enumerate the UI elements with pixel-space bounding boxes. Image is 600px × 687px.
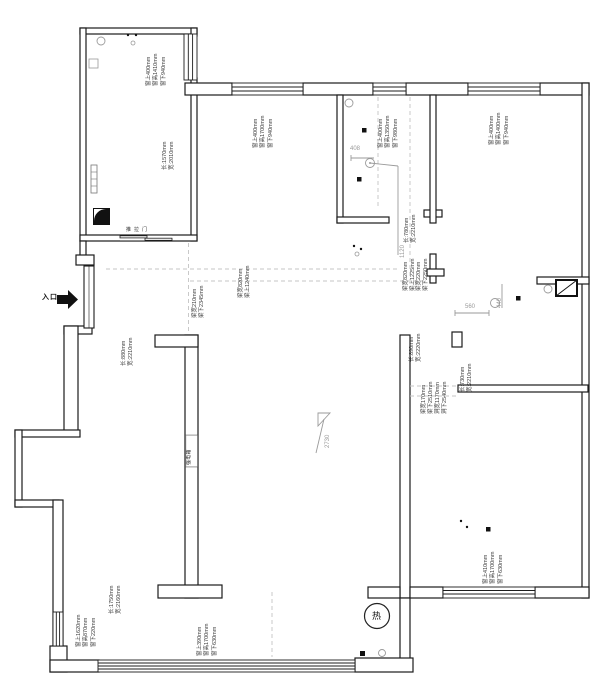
floor-plan-canvas: 窗上400mm 窗高1410mm 窗下940mm 窗上400mm 窗高1700m… <box>0 0 600 687</box>
sliding-door <box>120 236 172 241</box>
entrance-arrow-icon <box>57 290 78 309</box>
level-marker <box>316 413 330 453</box>
windows <box>53 34 540 672</box>
floor-plan-drawing <box>0 0 600 687</box>
walls <box>15 28 589 672</box>
dimension-lines <box>351 155 502 316</box>
electric-box-symbol <box>186 435 198 467</box>
entry-door <box>84 266 94 328</box>
